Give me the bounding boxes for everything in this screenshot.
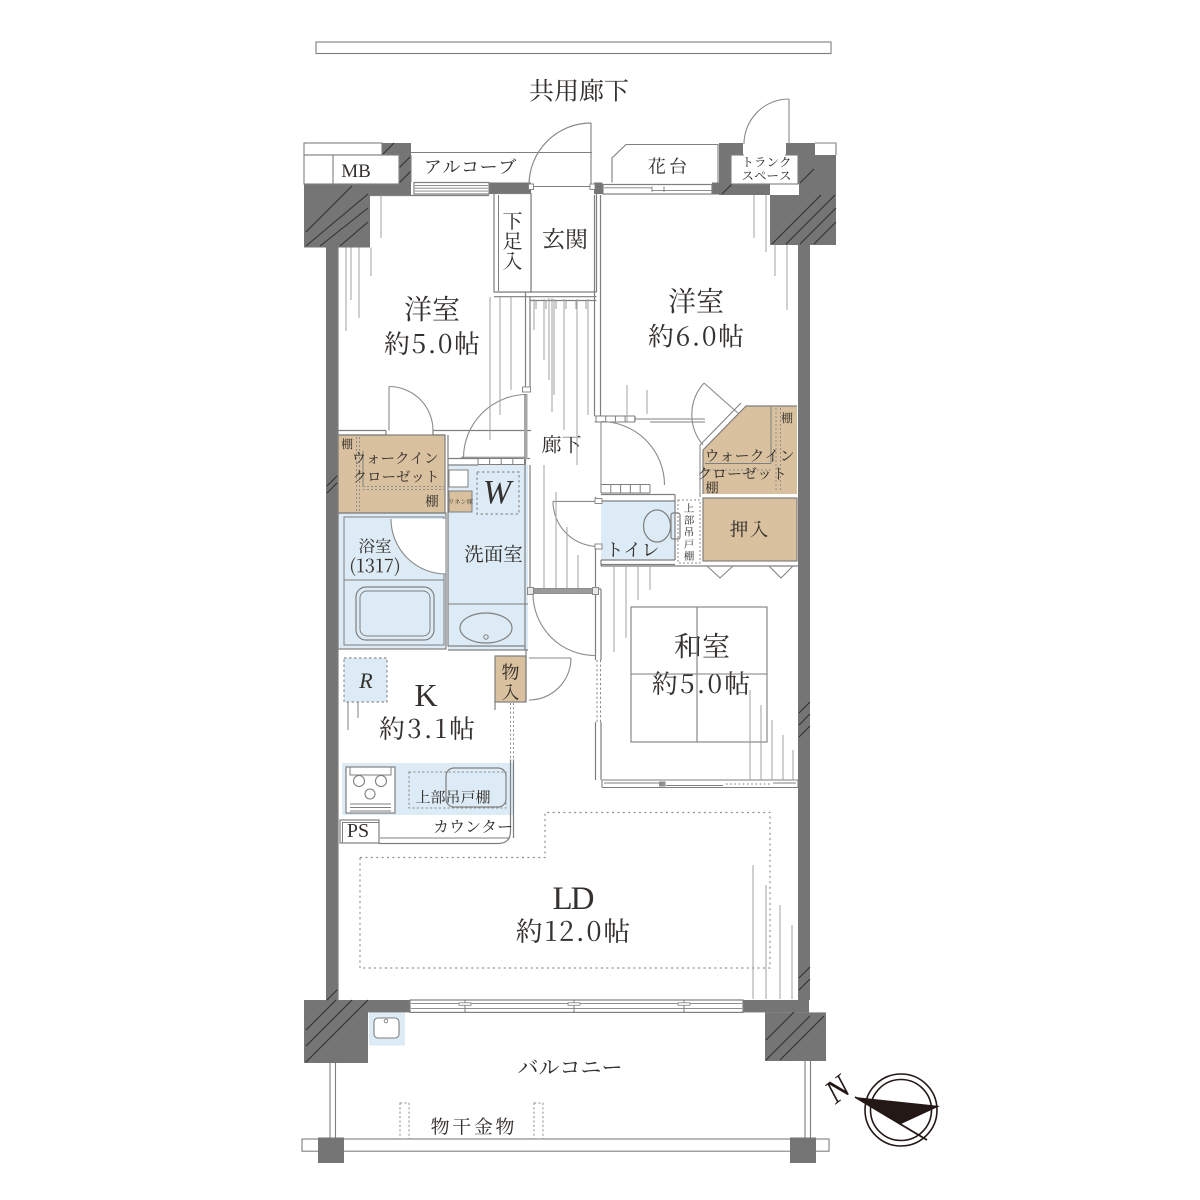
svg-text:PS: PS [347, 820, 369, 842]
svg-text:R: R [358, 668, 373, 693]
svg-text:MB: MB [341, 161, 371, 182]
svg-text:W: W [483, 474, 514, 511]
svg-text:LD: LD [553, 881, 594, 917]
svg-text:K: K [414, 677, 437, 713]
